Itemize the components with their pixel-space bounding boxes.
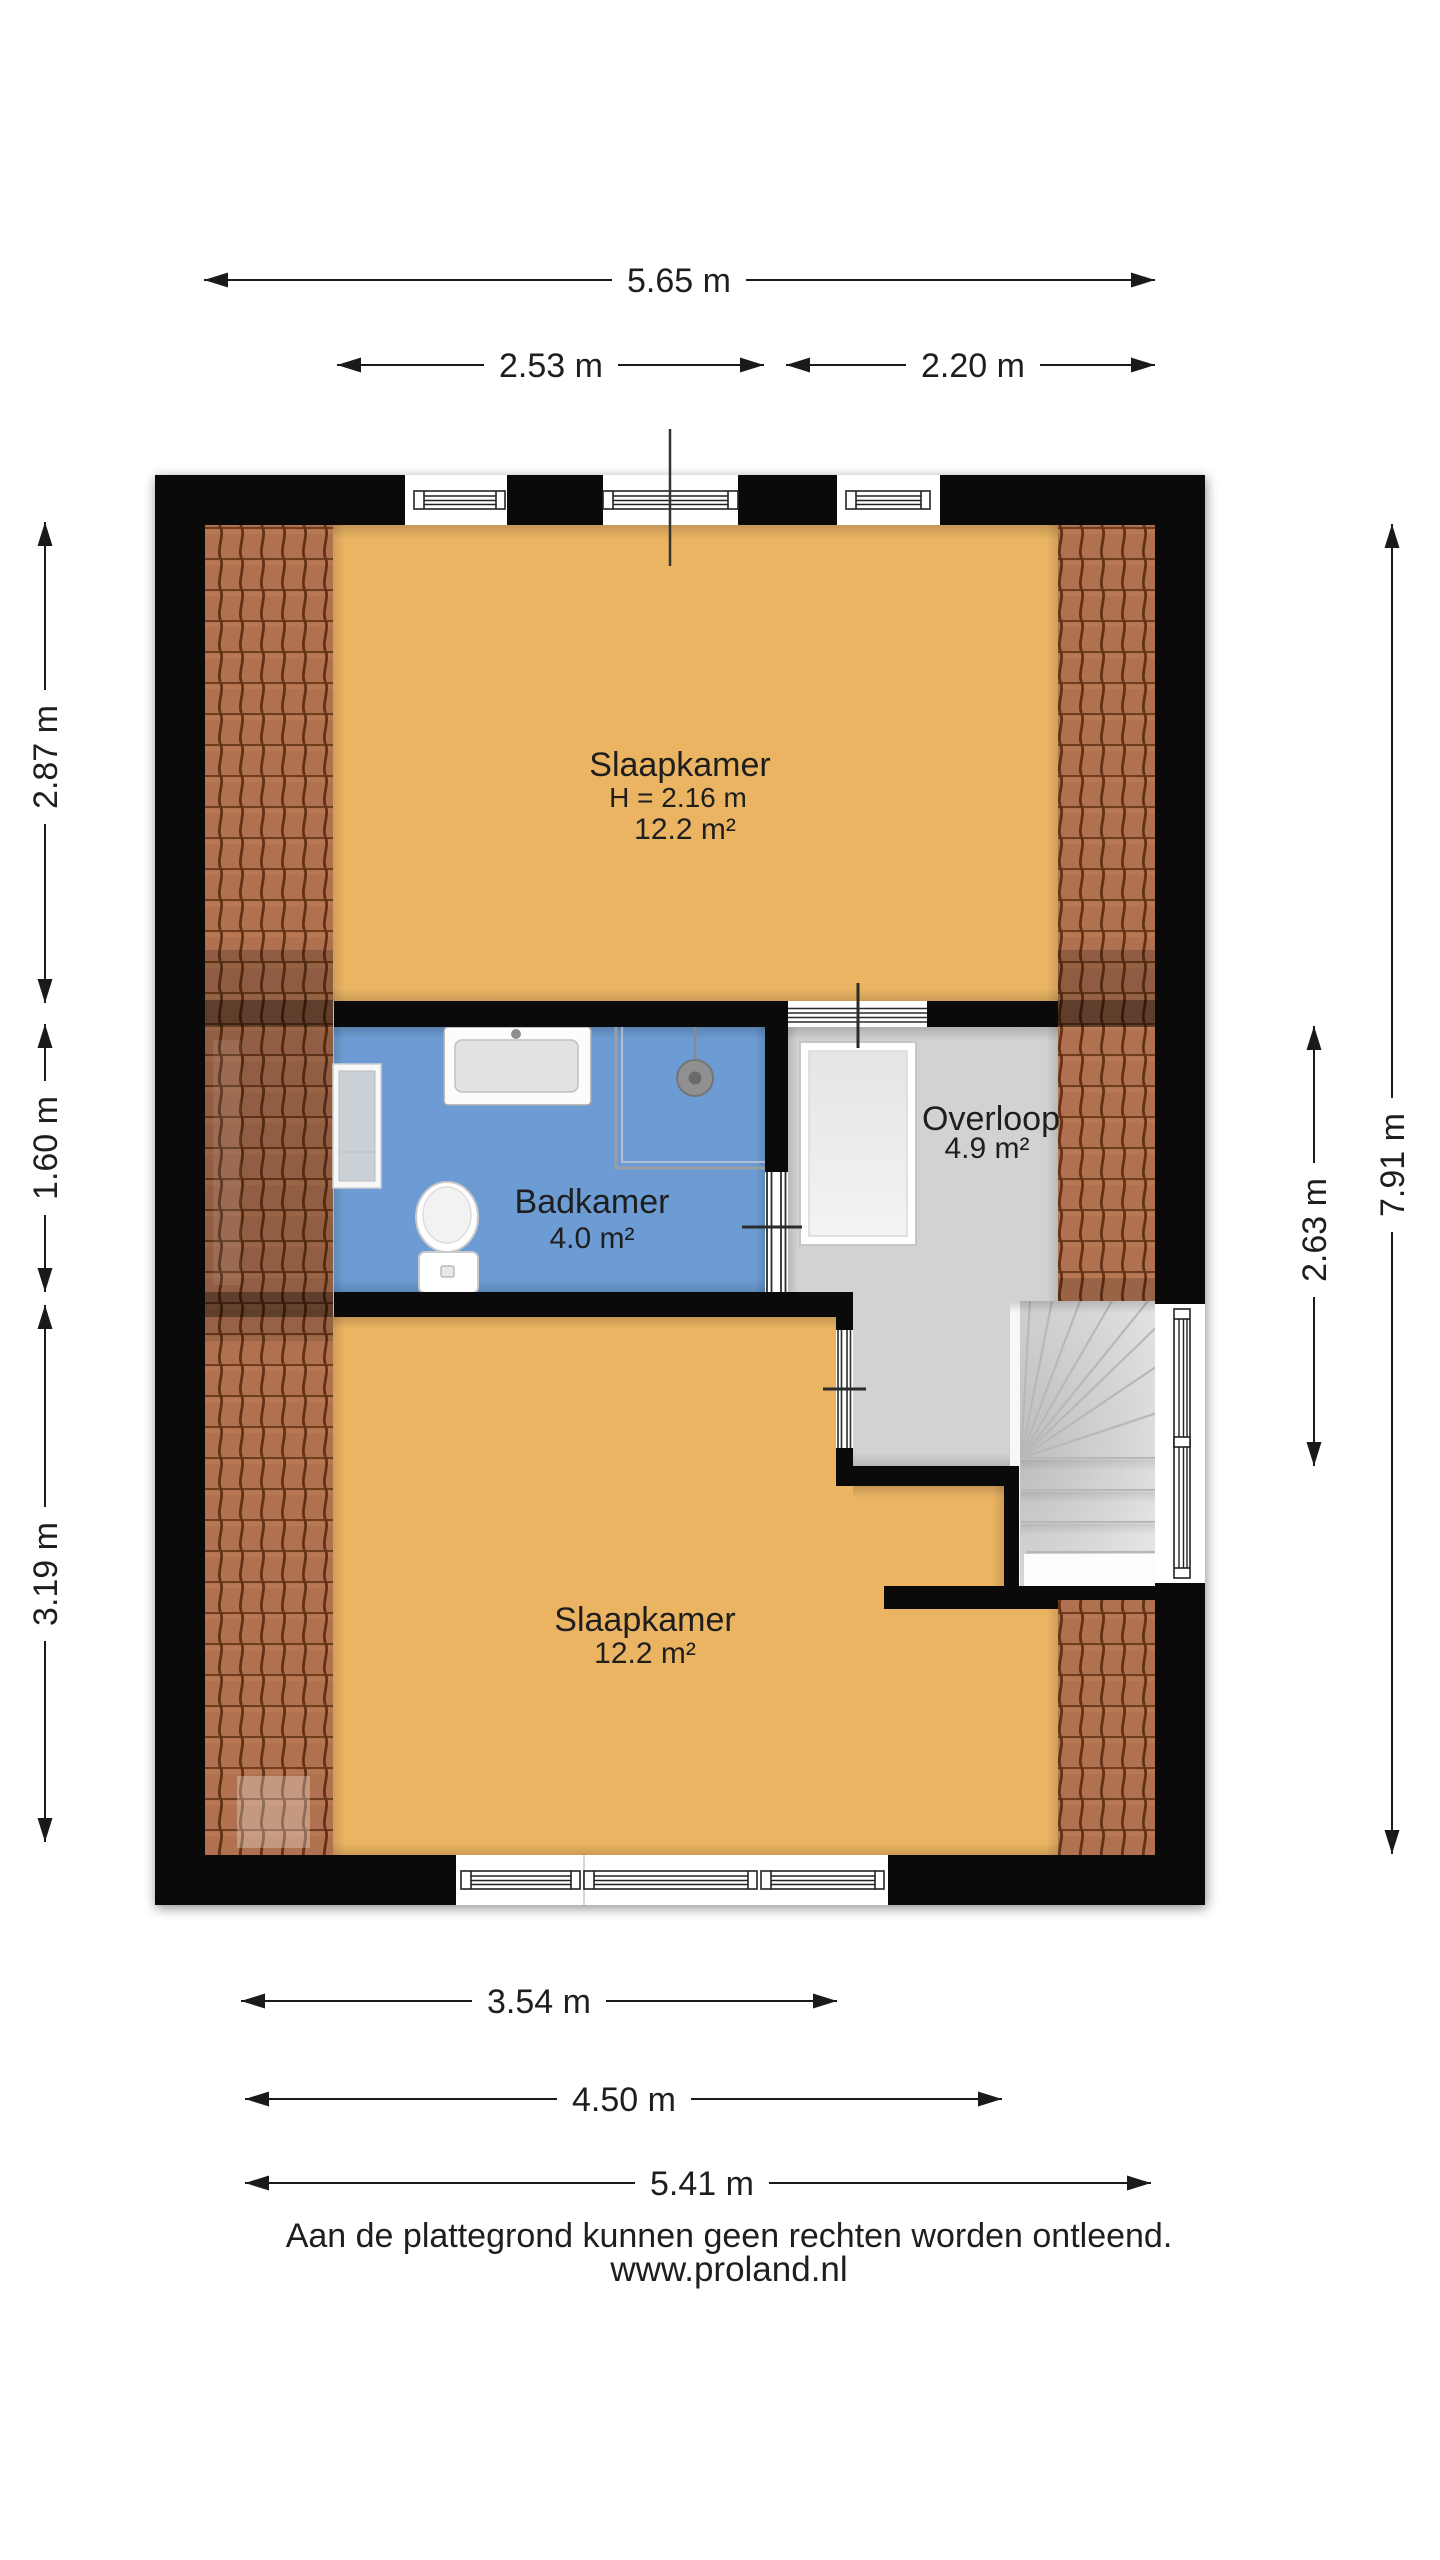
svg-text:3.19 m: 3.19 m [27, 1522, 65, 1626]
svg-text:7.91 m: 7.91 m [1374, 1113, 1412, 1217]
svg-text:2.63 m: 2.63 m [1296, 1178, 1334, 1282]
svg-text:12.2 m²: 12.2 m² [594, 1637, 696, 1670]
svg-text:Slaapkamer: Slaapkamer [589, 746, 770, 784]
svg-text:Badkamer: Badkamer [515, 1183, 670, 1221]
svg-text:12.2 m²: 12.2 m² [634, 813, 736, 846]
svg-text:www.proland.nl: www.proland.nl [609, 2250, 847, 2289]
svg-text:5.65 m: 5.65 m [627, 262, 731, 300]
svg-text:1.60 m: 1.60 m [27, 1096, 65, 1200]
svg-text:5.41 m: 5.41 m [650, 2165, 754, 2203]
svg-text:Slaapkamer: Slaapkamer [554, 1601, 735, 1639]
svg-text:2.20 m: 2.20 m [921, 347, 1025, 385]
svg-text:3.54 m: 3.54 m [487, 1983, 591, 2021]
svg-text:4.0 m²: 4.0 m² [549, 1222, 634, 1255]
svg-text:H = 2.16 m: H = 2.16 m [609, 782, 747, 813]
svg-text:4.9 m²: 4.9 m² [944, 1132, 1029, 1165]
svg-text:4.50 m: 4.50 m [572, 2081, 676, 2119]
svg-text:2.53 m: 2.53 m [499, 347, 603, 385]
svg-text:2.87 m: 2.87 m [27, 705, 65, 809]
